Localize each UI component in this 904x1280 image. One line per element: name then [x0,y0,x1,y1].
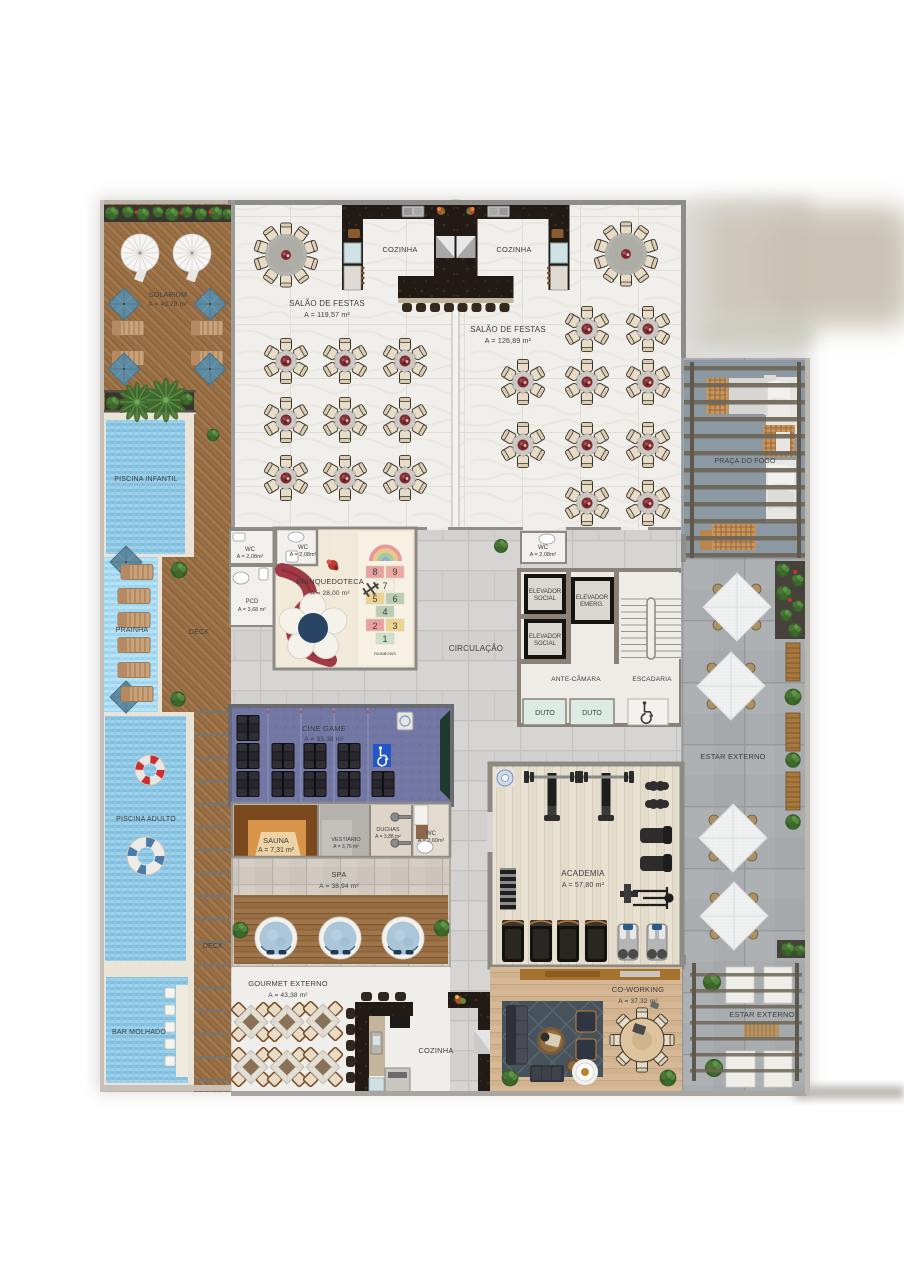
svg-text:A = 28,00 m²: A = 28,00 m² [310,590,350,597]
svg-text:SALÃO DE FESTAS: SALÃO DE FESTAS [470,325,546,334]
svg-text:COZINHA: COZINHA [382,245,417,254]
svg-text:A = 3,68 m²: A = 3,68 m² [238,607,266,613]
svg-text:4: 4 [382,607,387,617]
svg-text:PISCINA ADULTO: PISCINA ADULTO [116,816,176,823]
svg-text:A = 2,08m²: A = 2,08m² [290,552,317,558]
svg-text:SPA: SPA [331,870,346,879]
svg-text:BRINQUEDOTECA: BRINQUEDOTECA [296,577,364,586]
svg-text:A = 3,76 m²: A = 3,76 m² [333,844,359,850]
svg-text:BAR MOLHADO: BAR MOLHADO [112,1029,166,1036]
svg-text:5: 5 [372,594,377,604]
svg-text:DECK: DECK [189,629,209,636]
svg-text:GOURMET EXTERNO: GOURMET EXTERNO [248,979,328,988]
svg-text:ELEVADOR: ELEVADOR [529,634,562,640]
svg-text:DUTO: DUTO [582,710,602,717]
svg-text:COZINHA: COZINHA [418,1046,453,1055]
svg-text:SOLARIUM: SOLARIUM [149,292,187,299]
svg-text:CINE GAME: CINE GAME [302,724,346,733]
svg-text:7: 7 [382,581,387,591]
svg-text:DECK: DECK [203,943,223,950]
svg-text:2: 2 [372,621,377,631]
svg-text:8: 8 [372,567,377,577]
svg-text:A = 126,89 m²: A = 126,89 m² [485,338,532,345]
svg-text:A = 7,31 m²: A = 7,31 m² [258,847,295,854]
svg-text:WC: WC [426,831,437,837]
svg-text:SAUNA: SAUNA [263,836,289,845]
svg-text:WC: WC [245,547,256,553]
svg-text:SOCIAL: SOCIAL [534,641,557,647]
svg-text:ACADEMIA: ACADEMIA [561,869,605,878]
svg-text:PRAÇA DO FOGO: PRAÇA DO FOGO [714,458,776,465]
svg-text:3: 3 [392,621,397,631]
svg-text:A = 33,38 m²: A = 33,38 m² [304,736,344,743]
svg-text:PCD: PCD [246,599,259,605]
svg-text:CIRCULAÇÃO: CIRCULAÇÃO [449,644,503,653]
svg-text:ESTAR EXTERNO: ESTAR EXTERNO [729,1010,794,1019]
svg-text:A = 57,80 m²: A = 57,80 m² [562,882,605,889]
svg-text:9: 9 [392,567,397,577]
svg-text:A = 2,08m²: A = 2,08m² [530,552,557,558]
svg-text:A = 119,57 m²: A = 119,57 m² [304,312,350,319]
svg-text:DUCHAS: DUCHAS [376,827,400,833]
svg-text:SOCIAL: SOCIAL [534,596,557,602]
svg-text:A = 2,08m²: A = 2,08m² [237,554,264,560]
svg-text:WC: WC [538,545,549,551]
svg-text:VESTIÁRIO: VESTIÁRIO [331,836,361,843]
svg-text:A = 2,60m²: A = 2,60m² [418,838,445,844]
svg-text:A = 43,38 m²: A = 43,38 m² [268,992,308,999]
svg-text:PISCINA INFANTIL: PISCINA INFANTIL [114,476,178,483]
svg-text:CO-WORKING: CO-WORKING [612,985,664,994]
svg-text:ESTAR EXTERNO: ESTAR EXTERNO [700,752,765,761]
svg-text:COZINHA: COZINHA [496,245,531,254]
svg-text:RAINBOWS: RAINBOWS [374,651,396,656]
svg-text:PRAINHA: PRAINHA [116,627,149,634]
svg-text:A = 3,88 m²: A = 3,88 m² [375,834,401,840]
svg-text:ELEVADOR: ELEVADOR [529,589,562,595]
svg-text:A = 37,32 m²: A = 37,32 m² [618,998,658,1005]
svg-text:A = 38,94 m²: A = 38,94 m² [319,883,359,890]
svg-text:SALÃO DE FESTAS: SALÃO DE FESTAS [289,299,365,308]
svg-text:ANTE-CÂMARA: ANTE-CÂMARA [551,674,601,683]
svg-text:1: 1 [382,634,387,644]
svg-text:6: 6 [392,594,397,604]
svg-text:DUTO: DUTO [535,710,555,717]
svg-text:WC: WC [298,545,309,551]
svg-text:A = 43,78 m²: A = 43,78 m² [148,301,188,308]
svg-text:EMERG.: EMERG. [580,602,604,608]
svg-text:ELEVADOR: ELEVADOR [576,595,609,601]
svg-text:ESCADARIA: ESCADARIA [632,676,672,683]
